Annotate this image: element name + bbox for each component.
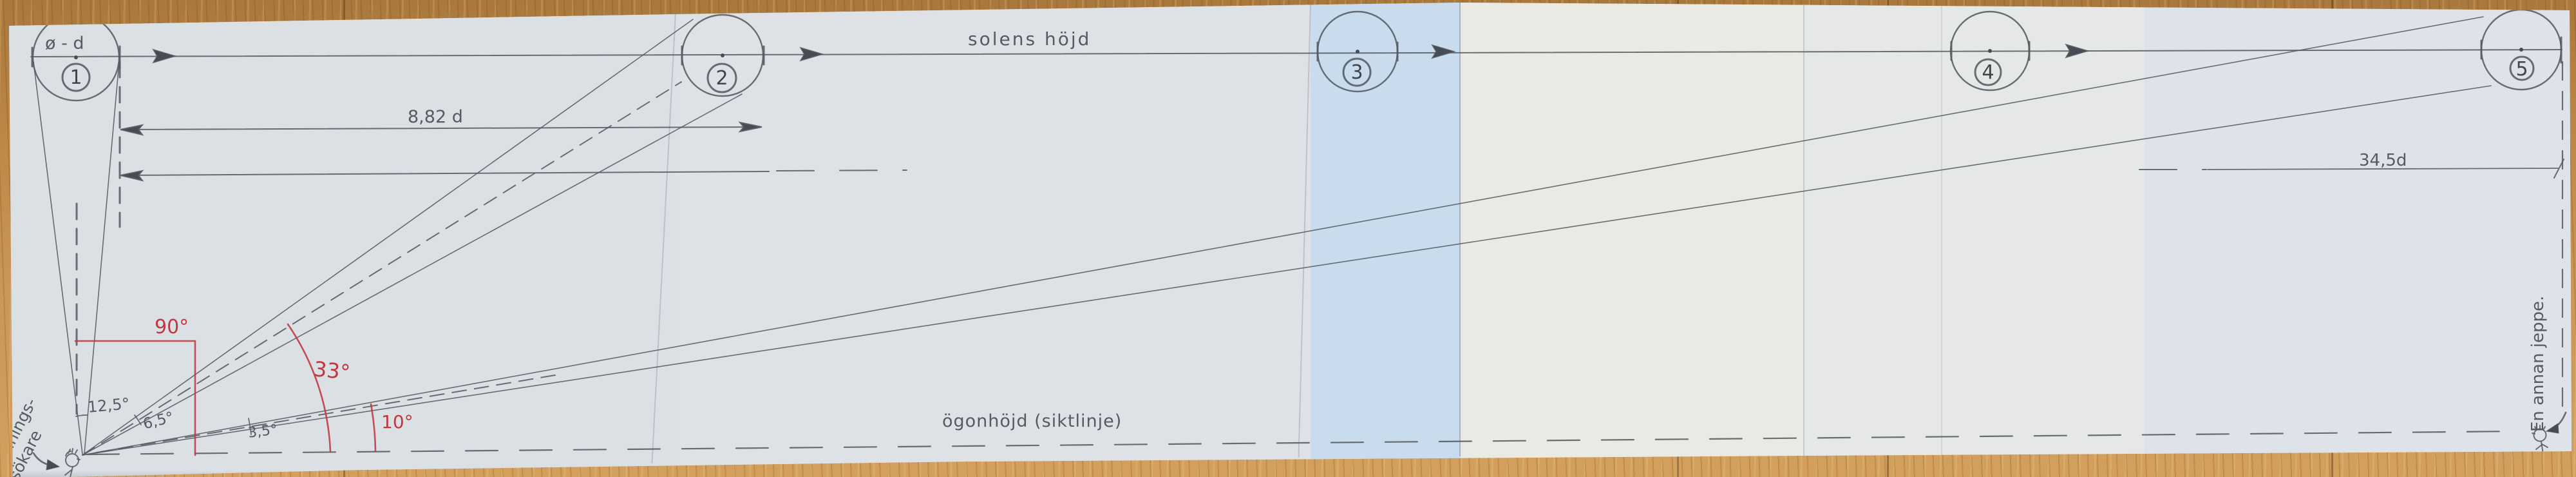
left-label-arrow bbox=[33, 453, 59, 470]
angle-arc-10 bbox=[371, 404, 375, 451]
distance-34-5d-label: 34,5d bbox=[2359, 151, 2407, 170]
view-cone-mirror-5 bbox=[82, 17, 2491, 455]
circle-number-3: 3 bbox=[1343, 61, 1371, 84]
circle-number-1: 1 bbox=[62, 66, 90, 89]
distance-8-82d-label: 8,82 d bbox=[408, 107, 463, 127]
right-label-arrow bbox=[2546, 413, 2566, 433]
circle-number-4: 4 bbox=[1974, 61, 2002, 84]
angle-arc-6-5 bbox=[135, 415, 141, 425]
sun-height-line bbox=[31, 37, 2562, 68]
circle-number-2: 2 bbox=[708, 67, 736, 90]
angle-10-label: 10° bbox=[381, 411, 413, 433]
sun-height-label: solens höjd bbox=[968, 28, 1091, 50]
angle-33-label: 33° bbox=[312, 356, 351, 385]
red-annotations bbox=[75, 324, 375, 455]
eye-height-sight-line bbox=[87, 431, 2519, 454]
diameter-label: ø - d bbox=[45, 34, 84, 54]
taped-paper-strip: 1 2 3 4 5 ø - d 8,82 d solens höjd 34,5d… bbox=[0, 0, 2576, 477]
number-rings bbox=[62, 57, 2533, 92]
truth-seeker-figure bbox=[65, 449, 80, 477]
circle-number-5: 5 bbox=[2508, 58, 2536, 81]
angle-12-5-label: 12,5° bbox=[87, 394, 131, 416]
dimension-34-5d bbox=[120, 159, 2564, 180]
other-guy-label: En annan jeppe. bbox=[2528, 296, 2548, 432]
angle-arc-33 bbox=[288, 324, 330, 451]
paper-edge-shadow bbox=[0, 471, 2576, 477]
view-cone-mirror-2 bbox=[82, 19, 742, 455]
pencil-drawing bbox=[0, 0, 2576, 477]
eye-height-label: ögonhöjd (siktlinje) bbox=[942, 411, 1122, 431]
wood-table-background: 1 2 3 4 5 ø - d 8,82 d solens höjd 34,5d… bbox=[0, 0, 2576, 477]
right-angle-label: 90° bbox=[155, 316, 189, 338]
